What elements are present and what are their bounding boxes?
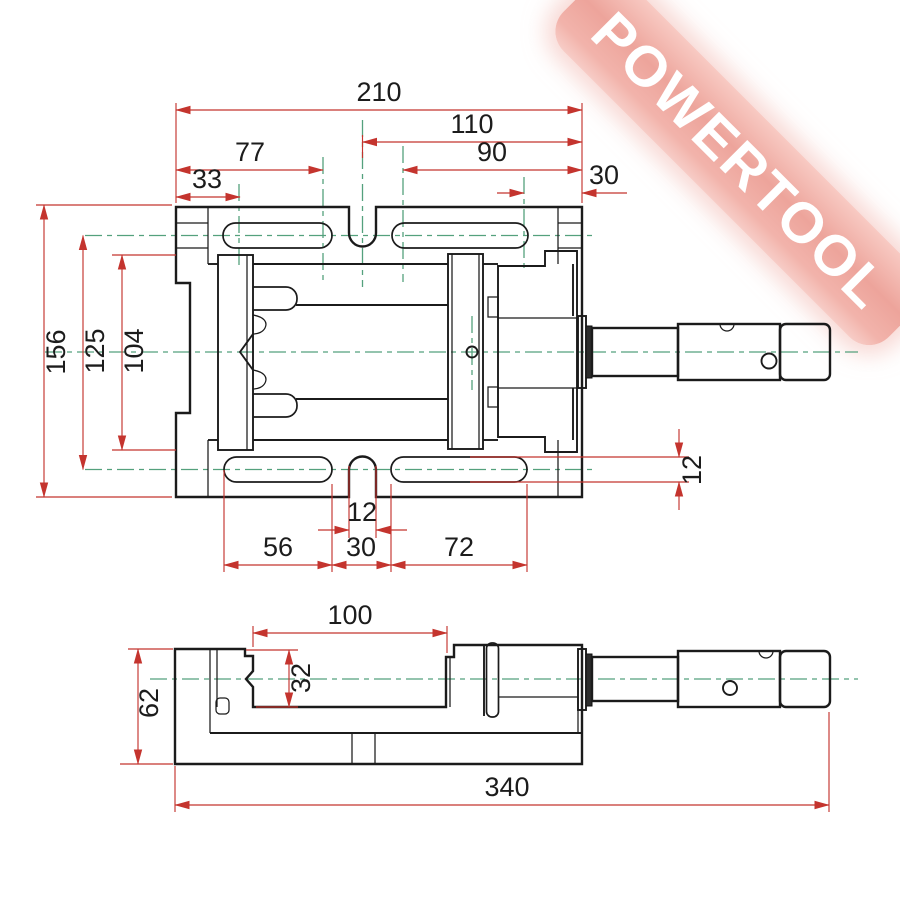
front-view-dimensions bbox=[120, 626, 829, 812]
drawing-canvas: POWERTOOL bbox=[0, 0, 900, 900]
dim-label-56: 56 bbox=[263, 532, 293, 562]
dim-label-210: 210 bbox=[356, 77, 401, 107]
dim-label-30-right: 30 bbox=[589, 160, 619, 190]
dim-label-12-slot: 12 bbox=[677, 455, 707, 485]
dim-label-104: 104 bbox=[119, 328, 149, 373]
dim-label-77: 77 bbox=[235, 137, 265, 167]
dim-label-90: 90 bbox=[477, 137, 507, 167]
dim-label-100: 100 bbox=[327, 600, 372, 630]
dim-label-30-gap: 30 bbox=[346, 532, 376, 562]
dim-label-340: 340 bbox=[484, 772, 529, 802]
dim-label-156: 156 bbox=[41, 329, 71, 374]
top-view bbox=[36, 103, 858, 572]
dim-label-62: 62 bbox=[134, 688, 164, 718]
dim-label-72: 72 bbox=[444, 532, 474, 562]
handle-pin-hole bbox=[762, 354, 777, 369]
front-view-body-outline bbox=[175, 645, 582, 764]
vise-technical-drawing: 210 110 77 90 33 30 156 125 104 12 12 56… bbox=[0, 0, 900, 900]
dim-label-32: 32 bbox=[286, 663, 316, 693]
handle-pin-hole bbox=[723, 681, 737, 695]
dim-label-110: 110 bbox=[450, 109, 493, 139]
dim-label-125: 125 bbox=[80, 328, 110, 373]
dim-label-33: 33 bbox=[192, 164, 222, 194]
dim-label-12-notch: 12 bbox=[347, 497, 377, 527]
gib-slot bbox=[487, 643, 499, 717]
